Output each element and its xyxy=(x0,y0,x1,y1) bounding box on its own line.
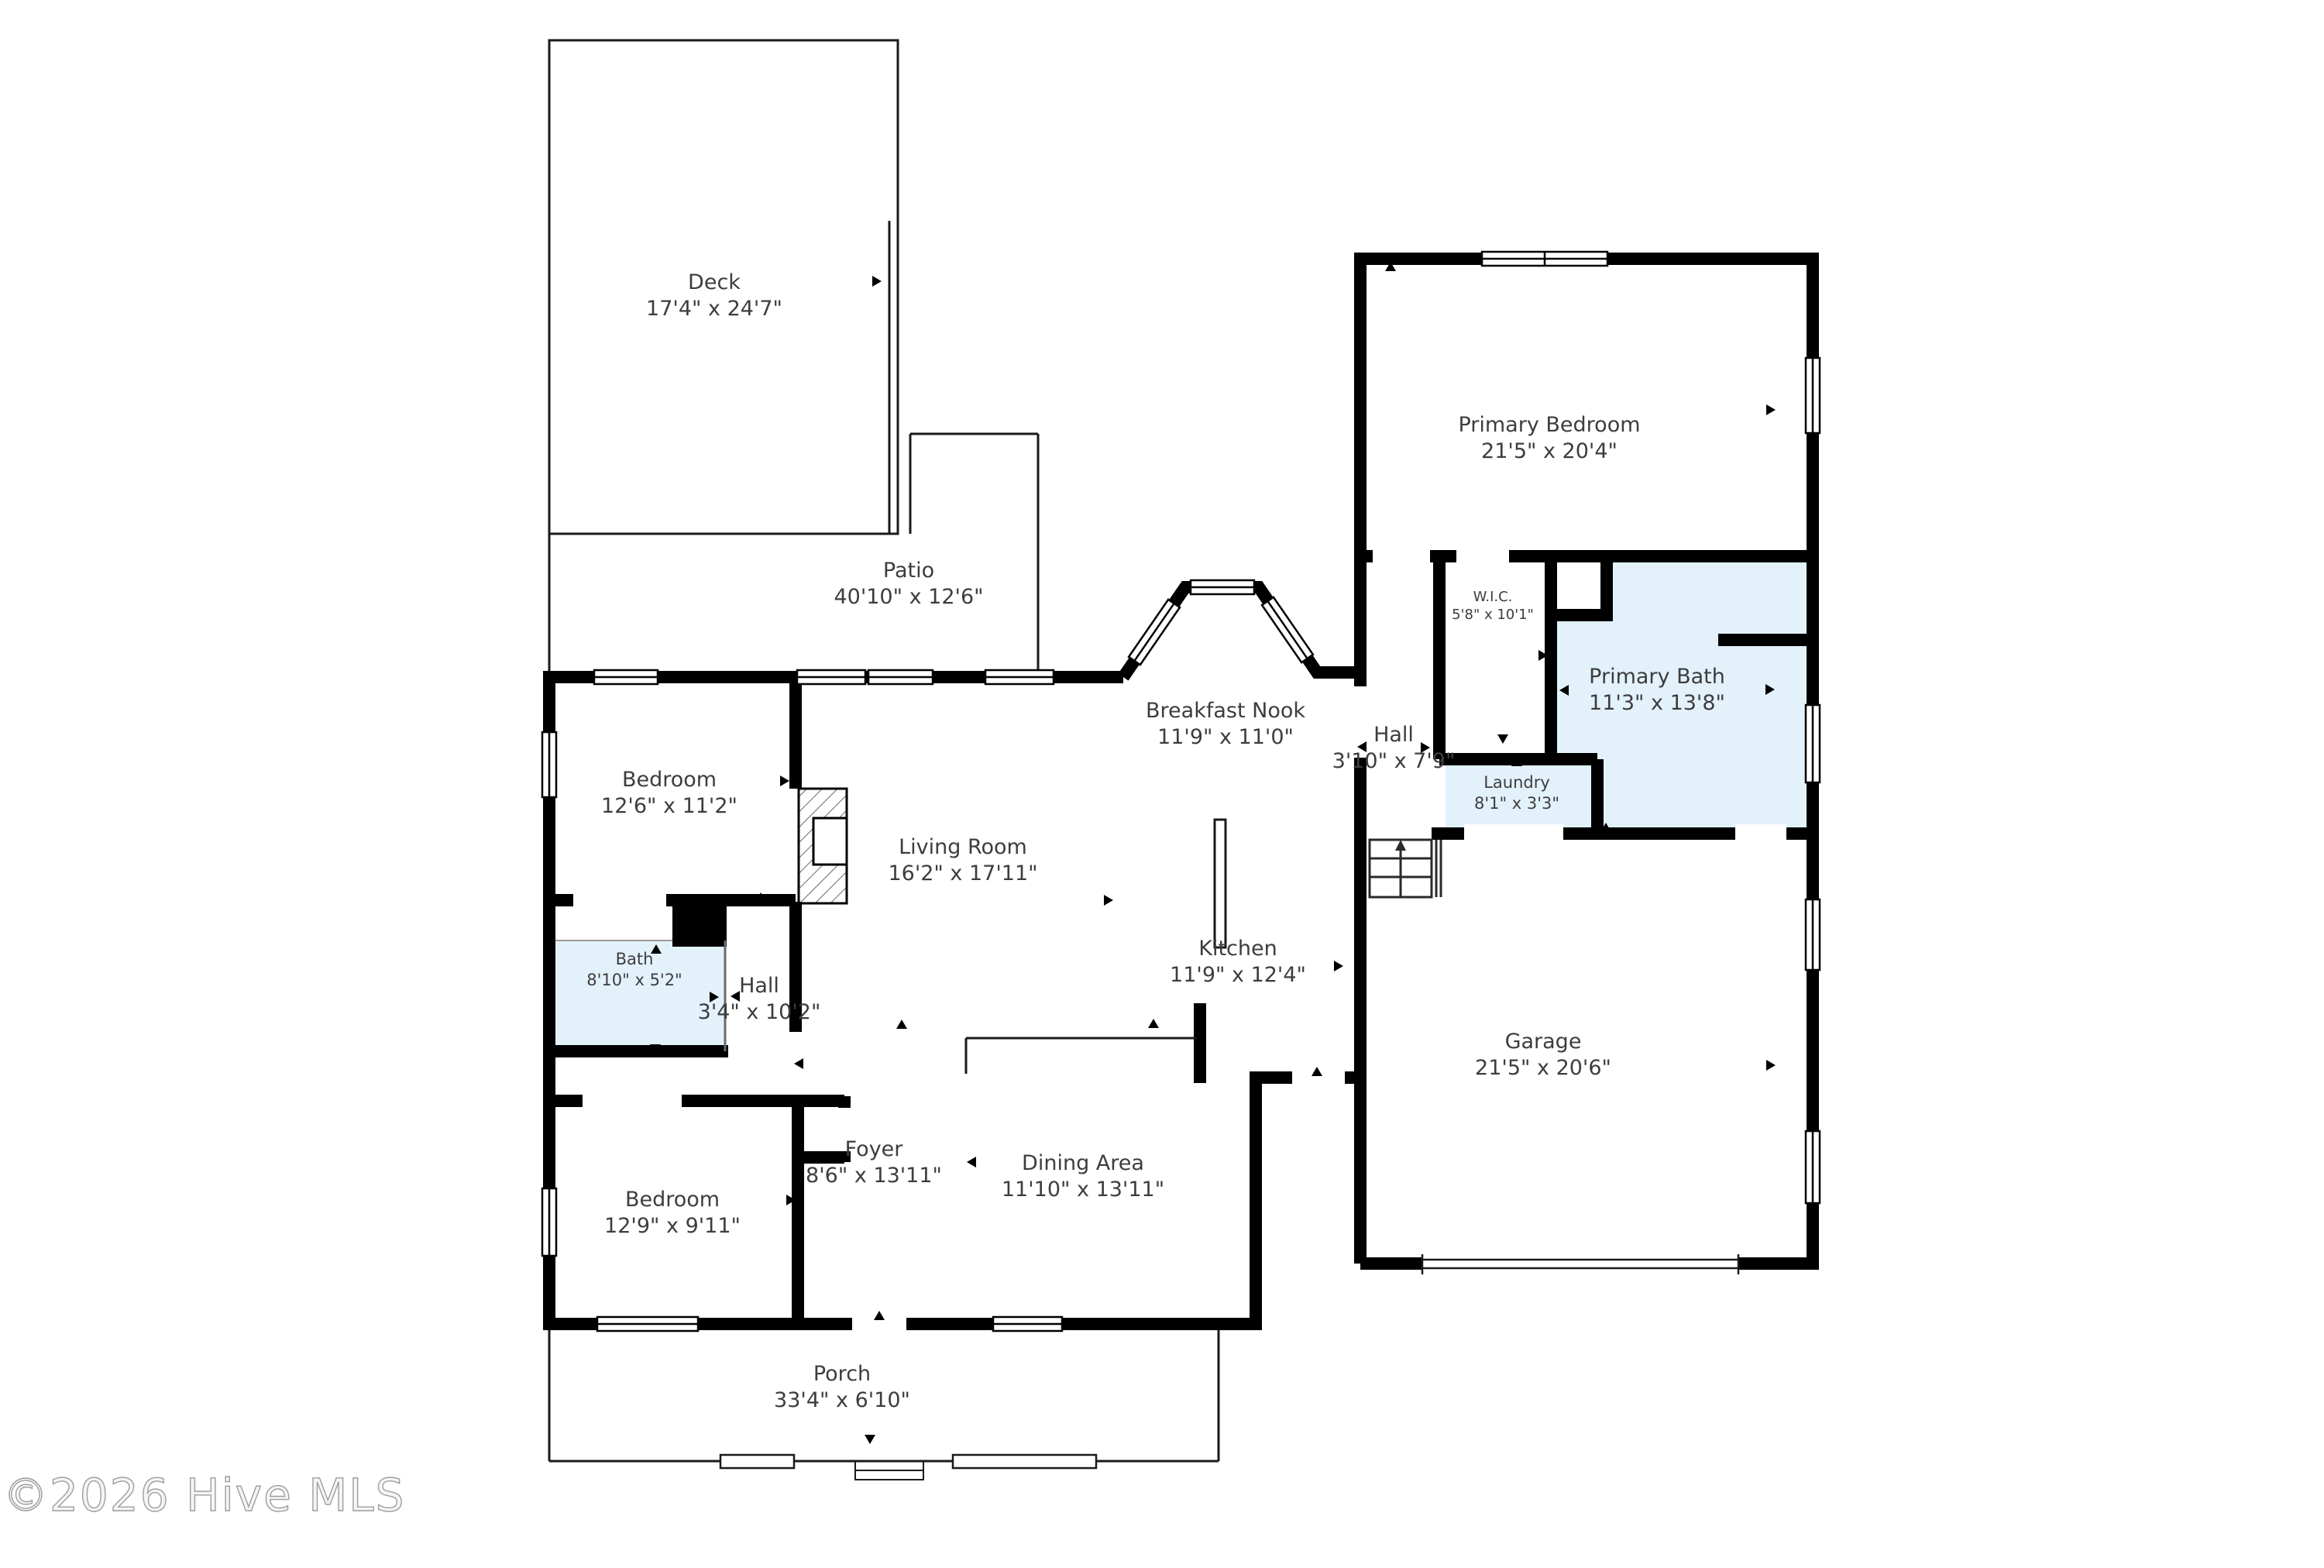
room-name: Patio xyxy=(834,558,983,584)
room-name: Porch xyxy=(774,1361,910,1387)
room-name: Primary Bath xyxy=(1589,664,1725,690)
kitchen-counter xyxy=(966,1038,1197,1074)
room-name: Laundry xyxy=(1474,772,1559,793)
room-label-bath: Bath 8'10" x 5'2" xyxy=(586,949,682,991)
garage-door xyxy=(1422,1254,1738,1274)
patio-outline xyxy=(549,434,1038,671)
room-label-kitchen: Kitchen 11'9" x 12'4" xyxy=(1170,936,1306,989)
room-dims: 11'9" x 11'0" xyxy=(1146,724,1305,751)
floor-plan-drawing xyxy=(0,0,2324,1568)
room-label-deck: Deck 17'4" x 24'7" xyxy=(646,270,782,322)
stairs xyxy=(1370,840,1441,897)
room-name: Garage xyxy=(1475,1029,1611,1055)
bay-window-left xyxy=(1129,600,1180,665)
room-dims: 21'5" x 20'6" xyxy=(1475,1055,1611,1081)
room-label-breakfast-nook: Breakfast Nook 11'9" x 11'0" xyxy=(1146,698,1305,751)
room-name: Breakfast Nook xyxy=(1146,698,1305,724)
room-dims: 40'10" x 12'6" xyxy=(834,584,983,610)
room-name: W.I.C. xyxy=(1452,588,1534,606)
room-label-primary-bath: Primary Bath 11'3" x 13'8" xyxy=(1589,664,1725,717)
room-name: Living Room xyxy=(888,834,1037,861)
room-name: Bath xyxy=(586,949,682,970)
room-dims: 11'3" x 13'8" xyxy=(1589,690,1725,717)
bay-window-right xyxy=(1262,597,1313,662)
room-dims: 12'6" x 11'2" xyxy=(601,793,737,820)
room-name: Deck xyxy=(646,270,782,296)
room-dims: 3'4" x 10'2" xyxy=(698,999,821,1026)
room-dims: 8'6" x 13'11" xyxy=(806,1163,942,1189)
room-label-living-room: Living Room 16'2" x 17'11" xyxy=(888,834,1037,887)
room-label-bedroom-2: Bedroom 12'9" x 9'11" xyxy=(604,1187,741,1240)
room-name: Primary Bedroom xyxy=(1458,412,1640,438)
room-label-wic: W.I.C. 5'8" x 10'1" xyxy=(1452,588,1534,624)
room-name: Hall xyxy=(698,973,821,999)
floor-plan-page: Deck 17'4" x 24'7" Patio 40'10" x 12'6" … xyxy=(0,0,2324,1568)
room-label-garage: Garage 21'5" x 20'6" xyxy=(1475,1029,1611,1081)
room-dims: 17'4" x 24'7" xyxy=(646,296,782,322)
room-dims: 11'9" x 12'4" xyxy=(1170,962,1306,989)
mls-watermark: ©2026 Hive MLS xyxy=(3,1469,405,1522)
room-name: Hall xyxy=(1332,722,1456,748)
room-dims: 11'10" x 13'11" xyxy=(1002,1177,1164,1203)
room-label-bedroom-1: Bedroom 12'6" x 11'2" xyxy=(601,767,737,820)
bay-window-top xyxy=(1191,580,1254,594)
fireplace xyxy=(799,789,847,903)
room-name: Bedroom xyxy=(604,1187,741,1213)
room-label-foyer: Foyer 8'6" x 13'11" xyxy=(806,1136,942,1189)
kitchen-island xyxy=(1215,820,1226,947)
room-dims: 8'1" x 3'3" xyxy=(1474,793,1559,814)
room-label-hall-left: Hall 3'4" x 10'2" xyxy=(698,973,821,1026)
room-name: Bedroom xyxy=(601,767,737,793)
room-dims: 3'10" x 7'9" xyxy=(1332,748,1456,775)
room-label-porch: Porch 33'4" x 6'10" xyxy=(774,1361,910,1414)
room-dims: 33'4" x 6'10" xyxy=(774,1387,910,1414)
room-label-primary-bedroom: Primary Bedroom 21'5" x 20'4" xyxy=(1458,412,1640,465)
room-dims: 12'9" x 9'11" xyxy=(604,1213,741,1240)
room-name: Kitchen xyxy=(1170,936,1306,962)
room-label-laundry: Laundry 8'1" x 3'3" xyxy=(1474,772,1559,814)
room-dims: 21'5" x 20'4" xyxy=(1458,438,1640,465)
room-label-patio: Patio 40'10" x 12'6" xyxy=(834,558,983,610)
bath-wall-block xyxy=(672,894,727,947)
room-name: Foyer xyxy=(806,1136,942,1163)
room-dims: 8'10" x 5'2" xyxy=(586,970,682,991)
room-label-hall-primary: Hall 3'10" x 7'9" xyxy=(1332,722,1456,775)
room-dims: 16'2" x 17'11" xyxy=(888,861,1037,887)
room-name: Dining Area xyxy=(1002,1150,1164,1177)
room-label-dining-area: Dining Area 11'10" x 13'11" xyxy=(1002,1150,1164,1203)
room-dims: 5'8" x 10'1" xyxy=(1452,606,1534,624)
